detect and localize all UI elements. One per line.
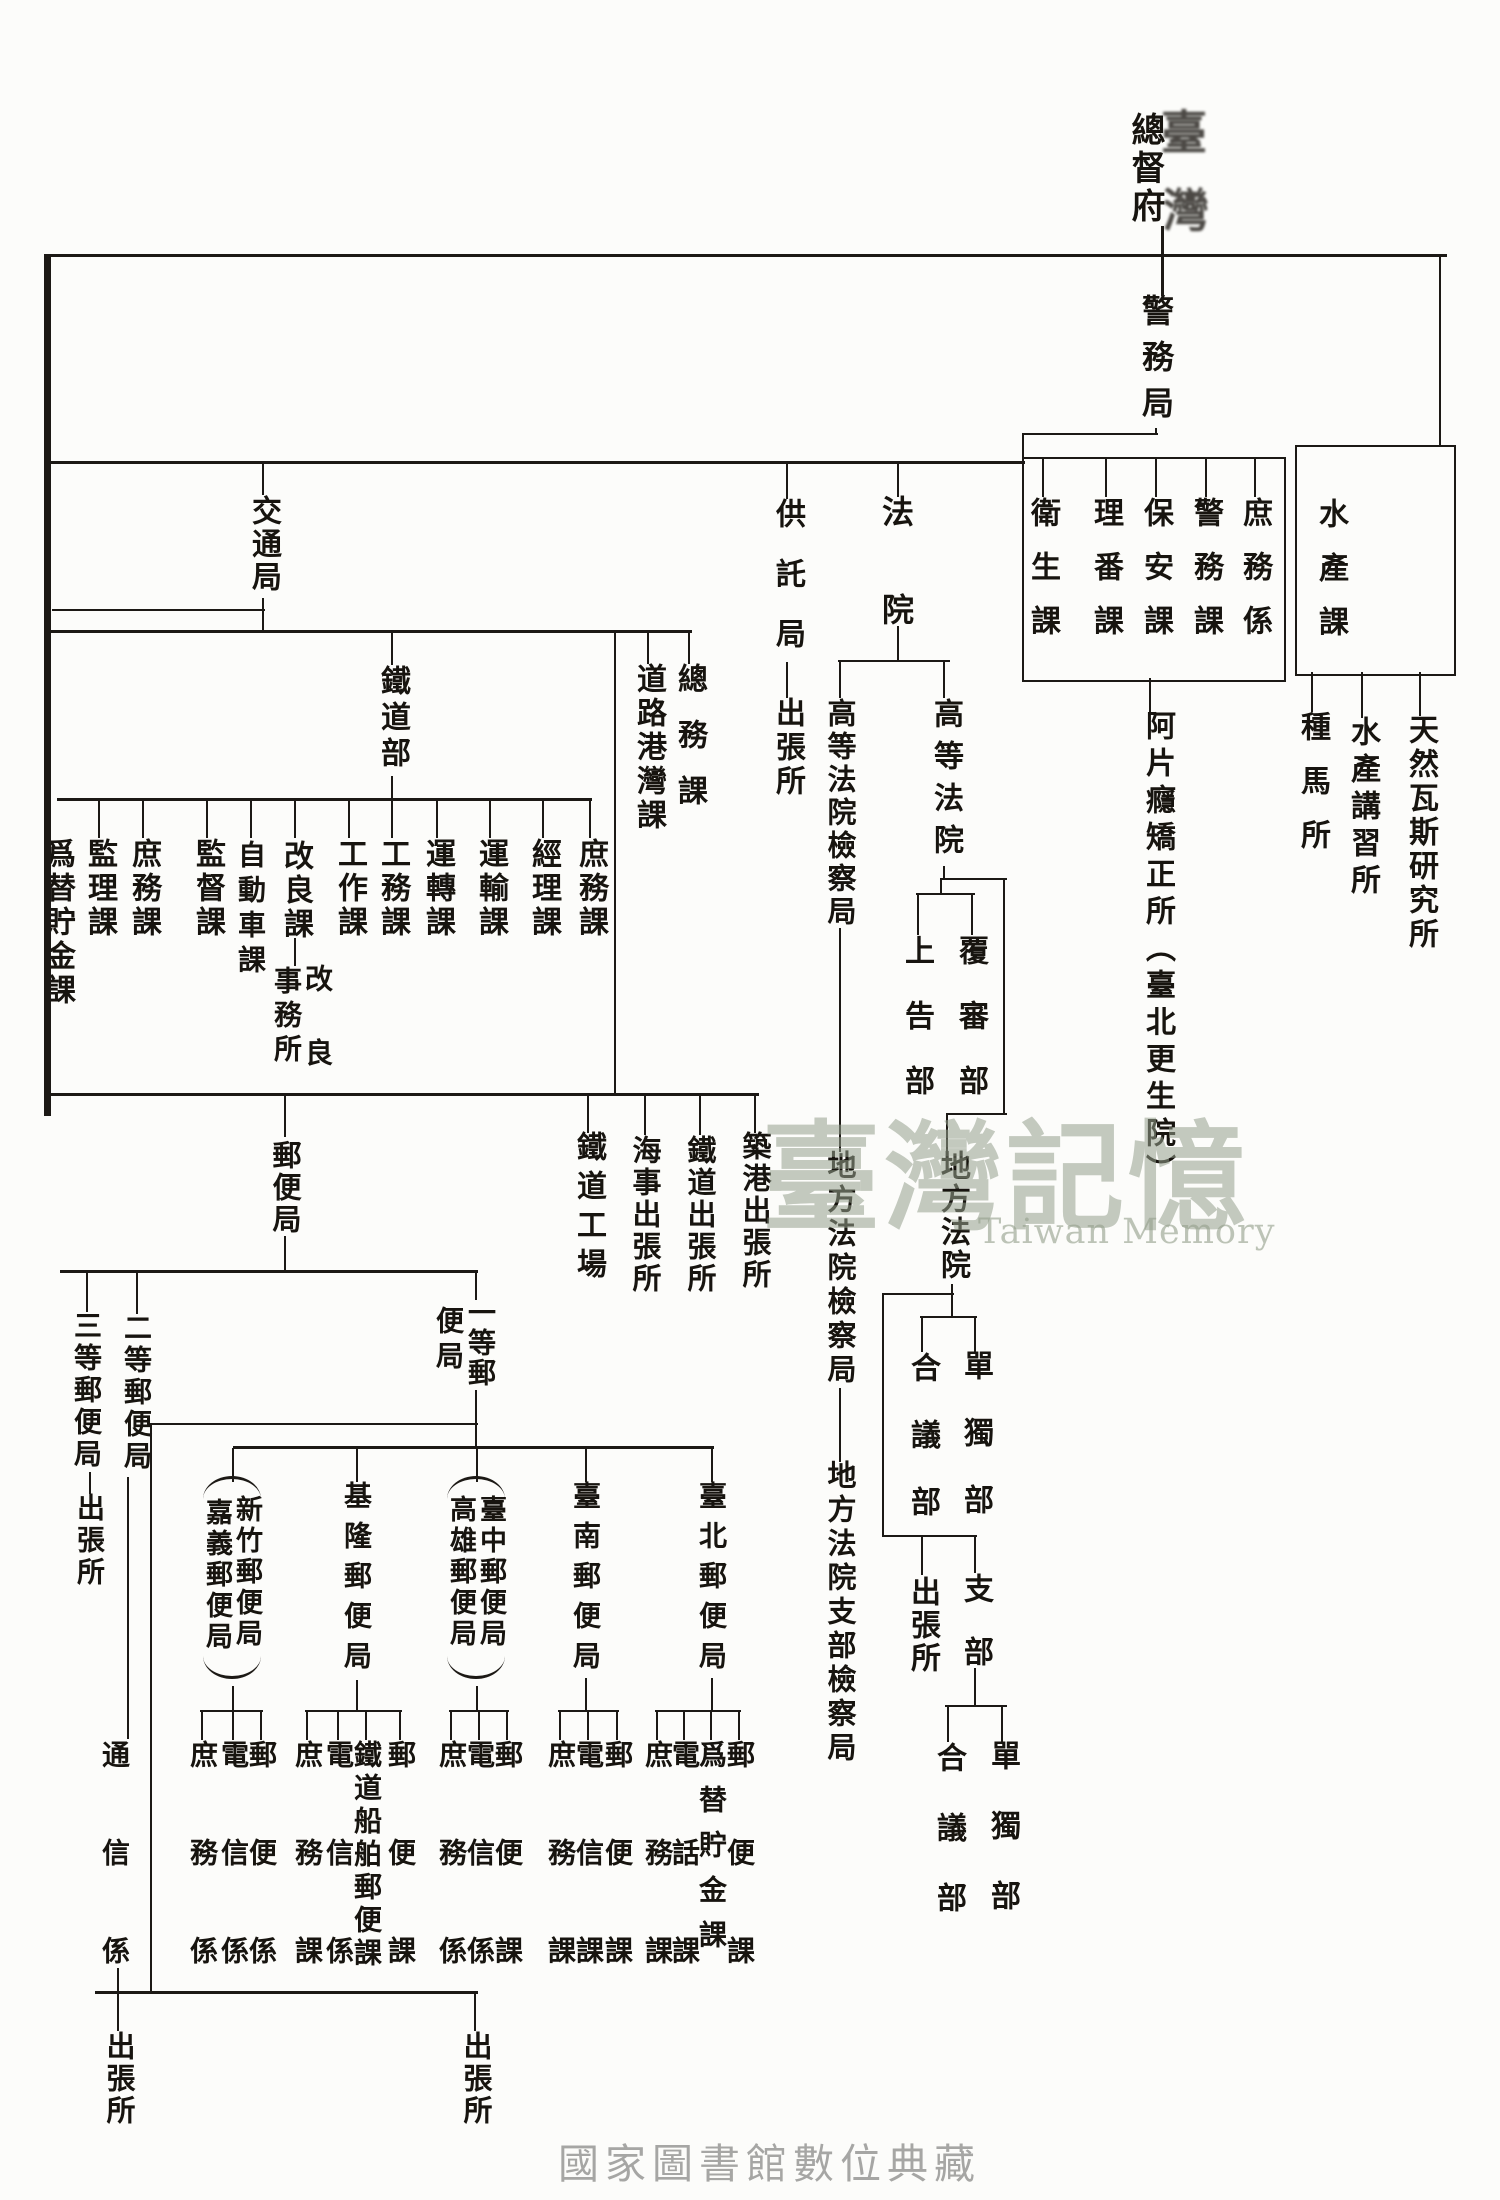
connector-line <box>656 1712 658 1740</box>
label-first-class-post-office-right: 一等郵 <box>466 1298 494 1388</box>
connector-line <box>294 938 296 966</box>
connector-line <box>391 800 393 838</box>
taiwan-memory-watermark-latin: Taiwan Memory <box>978 1212 1276 1252</box>
label-fisheries-training-institute: 水產講習所 <box>1347 716 1377 901</box>
label-railway-branch-office: 鐵道出張所 <box>685 1135 714 1295</box>
parenthesis-arc <box>203 1656 261 1679</box>
connector-line <box>52 609 265 611</box>
label-general-affairs-section: 總務課 <box>674 663 704 831</box>
connector-line <box>839 660 841 698</box>
label-railway-department: 鐵道部 <box>377 665 407 773</box>
connector-line <box>1149 678 1151 712</box>
connector-line <box>365 1712 367 1740</box>
connector-line <box>917 893 919 935</box>
connector-line <box>1003 878 1005 1115</box>
label-police-bureau: 警務局 <box>1140 294 1172 432</box>
connector-line <box>489 800 491 838</box>
connector-line <box>150 1423 478 1425</box>
connector-line <box>136 1270 138 1314</box>
connector-line <box>882 1293 954 1295</box>
connector-line <box>587 1095 589 1133</box>
label-high-court-prosecutors-office: 高等法院檢察局 <box>825 698 854 929</box>
label-takao-post-office: 高雄郵便局 <box>447 1495 474 1650</box>
connector-line <box>943 866 945 880</box>
connector-line <box>916 893 975 895</box>
label-single-judge-division: 單獨部 <box>960 1350 990 1551</box>
label-post-office: 郵便局 <box>270 1140 299 1236</box>
connector-line <box>356 1448 358 1482</box>
connector-line <box>710 1712 712 1740</box>
connector-line <box>232 1686 234 1712</box>
label-g5-mail-section: 郵便課 <box>725 1740 753 2034</box>
connector-line <box>356 1680 358 1712</box>
label-natural-gas-research-institute: 天然瓦斯研究所 <box>1405 714 1435 952</box>
label-transport-section: 運輸課 <box>475 838 505 940</box>
label-deposit-branch-office: 出張所 <box>772 697 802 799</box>
label-g2-general-affairs-section: 庶務課 <box>293 1740 321 2034</box>
label-improvement-office-left: 事務所 <box>272 966 300 1068</box>
label-third-class-post-office: 三等郵便局 <box>72 1311 100 1471</box>
connector-line <box>476 1686 478 1712</box>
connector-line <box>206 800 208 838</box>
parenthesis-arc <box>447 1656 505 1679</box>
connector-line <box>60 1270 478 1273</box>
connector-line <box>921 1535 923 1575</box>
connector-line <box>89 1472 91 1494</box>
connector-line <box>44 254 51 1116</box>
library-caption: 國家圖書館數位典藏 <box>558 2130 981 2190</box>
label-maritime-branch-office: 海事出張所 <box>630 1135 659 1295</box>
label-operation-section: 運轉課 <box>422 838 452 940</box>
connector-line <box>585 1448 587 1482</box>
label-horse-breeding-station: 種馬所 <box>1297 711 1327 873</box>
connector-line <box>117 1968 119 2031</box>
connector-line <box>45 254 1447 257</box>
connector-line <box>1161 256 1164 296</box>
label-taihoku-post-office: 臺北郵便局 <box>697 1481 725 1681</box>
connector-line <box>974 1668 976 1707</box>
label-kiirun-post-office: 基隆郵便局 <box>342 1481 370 1681</box>
connector-line <box>699 1095 701 1135</box>
label-road-harbor-section: 道路港灣課 <box>633 663 663 833</box>
connector-line <box>1022 433 1158 435</box>
label-general-affairs-section-rail-2: 庶務課 <box>575 838 605 940</box>
connector-line <box>838 660 950 662</box>
connector-line <box>1155 428 1157 435</box>
connector-line <box>391 776 393 800</box>
connector-line <box>478 1712 480 1740</box>
connector-line <box>589 800 591 838</box>
label-first-class-post-office-left: 便局 <box>434 1306 462 1376</box>
connector-line <box>127 1477 129 1739</box>
label-workshop-section: 工作課 <box>334 838 364 940</box>
label-branch-single-judge-division: 單獨部 <box>987 1740 1017 1950</box>
label-communications-unit: 通信係 <box>100 1740 128 2034</box>
connector-line <box>786 662 788 698</box>
parenthesis-arc <box>447 1476 505 1499</box>
connector-line <box>897 626 899 662</box>
connector-line <box>391 632 393 665</box>
connector-line <box>450 1712 452 1740</box>
connector-line <box>305 1710 402 1712</box>
label-g1-mail-unit: 郵便係 <box>247 1740 275 2034</box>
label-high-court: 高等法院 <box>930 698 960 866</box>
connector-line <box>883 1535 977 1537</box>
connector-line <box>506 1712 508 1740</box>
connector-line <box>974 1535 976 1573</box>
connector-line <box>260 1712 262 1740</box>
connector-line <box>655 1710 741 1712</box>
connector-line <box>940 878 942 895</box>
label-district-branch-prosecutors-office: 地方法院支部檢察局 <box>825 1460 854 1766</box>
connector-line <box>882 1293 884 1537</box>
connector-line <box>294 800 296 838</box>
connector-line <box>941 878 1007 880</box>
label-taiwan-overlay-1: 臺 <box>1158 108 1204 154</box>
connector-line <box>50 461 1025 464</box>
connector-line <box>951 1284 953 1318</box>
label-tainan-post-office: 臺南郵便局 <box>571 1481 599 1681</box>
connector-line <box>711 1448 713 1482</box>
connector-line <box>1161 226 1164 256</box>
label-taiwan-overlay-2: 灣 <box>1160 186 1206 232</box>
label-g2-rail-ship-mail-section: 鐵道船舶郵便課 <box>352 1740 380 1971</box>
connector-line <box>284 1095 286 1137</box>
connector-line <box>683 1712 685 1740</box>
connector-line <box>839 1388 841 1462</box>
connector-line <box>688 632 690 664</box>
connector-line <box>971 893 973 935</box>
connector-line <box>585 1678 587 1712</box>
label-kagi-post-office: 嘉義郵便局 <box>203 1498 230 1653</box>
label-g1-general-affairs-unit: 庶務係 <box>188 1740 216 2034</box>
connector-line <box>616 1712 618 1740</box>
connector-line <box>45 630 692 633</box>
connector-line <box>921 1316 923 1352</box>
connector-line <box>945 1705 1007 1707</box>
connector-line <box>262 598 264 632</box>
connector-line <box>1022 435 1024 459</box>
label-g3-telegraph-unit: 電信係 <box>465 1740 493 2034</box>
label-taichu-post-office: 臺中郵便局 <box>477 1495 504 1650</box>
label-branch-collegiate-division: 合議部 <box>933 1742 963 1952</box>
connector-line <box>920 1316 977 1318</box>
connector-line <box>201 1712 203 1740</box>
parenthesis-arc <box>203 1476 261 1499</box>
label-automobile-section: 自動車課 <box>236 840 264 980</box>
label-g2-telegraph-unit: 電信係 <box>324 1740 352 2034</box>
label-branch-office-bottom-middle: 出張所 <box>461 2031 490 2127</box>
label-shinchiku-post-office: 新竹郵便局 <box>233 1495 260 1650</box>
label-railway-factory: 鐵道工場 <box>573 1131 603 1287</box>
label-g2-mail-section: 郵便課 <box>386 1740 414 2034</box>
label-g4-mail-section: 郵便課 <box>603 1740 631 2034</box>
connector-line <box>1439 256 1441 446</box>
label-branch-office-bottom-left: 出張所 <box>104 2031 133 2127</box>
connector-line <box>1419 672 1421 716</box>
connector-line <box>150 1423 152 1993</box>
label-second-class-post-office: 二等郵便局 <box>122 1313 150 1473</box>
connector-line <box>232 1712 234 1740</box>
connector-line <box>644 1095 646 1135</box>
label-g4-telegraph-section: 電信課 <box>574 1740 602 2034</box>
label-accounting-section: 經理課 <box>528 838 558 940</box>
connector-line <box>943 660 945 698</box>
label-collegiate-division: 合議部 <box>907 1352 937 1553</box>
label-g1-telegraph-unit: 電信係 <box>219 1740 247 2034</box>
connector-line <box>1361 672 1363 718</box>
label-district-court-branch-office: 出張所 <box>907 1576 937 1675</box>
label-g5-general-affairs-section: 庶務課 <box>643 1740 671 2034</box>
connector-line <box>947 1705 949 1742</box>
connector-line <box>142 800 144 838</box>
connector-line <box>647 632 649 664</box>
connector-line <box>45 1093 759 1096</box>
connector-line <box>98 800 100 838</box>
connector-line <box>559 1712 561 1740</box>
connector-line <box>57 798 592 801</box>
label-transportation-bureau: 交通局 <box>248 495 278 594</box>
connector-line <box>475 1270 477 1300</box>
connector-line <box>1001 1705 1003 1742</box>
police-sections-box <box>1022 457 1286 682</box>
connector-line <box>614 632 616 1095</box>
label-improvement-office-right: 改良 <box>303 964 331 1112</box>
connector-line <box>786 463 788 499</box>
connector-line <box>738 1712 740 1740</box>
connector-line <box>474 1991 476 2031</box>
label-general-affairs-section-rail-1: 庶務課 <box>128 838 158 940</box>
connector-line <box>974 1316 976 1352</box>
label-improvement-section: 改良課 <box>280 840 310 942</box>
connector-line <box>348 800 350 838</box>
label-engineering-section: 工務課 <box>377 838 407 940</box>
label-deposit-bureau: 供託局 <box>772 498 802 678</box>
scanned-org-chart-page: 總督府臺灣警務局衛生課理番課保安課警務課庶務係阿片癮矯正所︵臺北更生院︶水產課種… <box>0 0 1500 2200</box>
connector-line <box>337 1712 339 1740</box>
connector-line <box>754 1095 756 1133</box>
label-g3-general-affairs-unit: 庶務係 <box>437 1740 465 2034</box>
connector-line <box>1311 672 1313 712</box>
label-inspection-section: 監督課 <box>192 838 222 940</box>
connector-line <box>284 1236 286 1272</box>
connector-line <box>306 1712 308 1740</box>
connector-line <box>233 1446 714 1449</box>
connector-line <box>86 1270 88 1312</box>
label-third-class-branch-office: 出張所 <box>75 1493 103 1589</box>
connector-line <box>711 1678 713 1712</box>
connector-line <box>399 1712 401 1740</box>
fisheries-section-box <box>1295 445 1456 676</box>
label-supervision-section: 監理課 <box>84 838 114 940</box>
label-g5-money-order-savings-section: 爲替貯金課 <box>697 1740 725 1965</box>
connector-line <box>542 800 544 838</box>
connector-line <box>897 463 899 497</box>
label-g4-general-affairs-section: 庶務課 <box>546 1740 574 2034</box>
connector-line <box>250 800 252 838</box>
connector-line <box>587 1712 589 1740</box>
connector-line <box>262 463 264 495</box>
label-g3-mail-section: 郵便課 <box>493 1740 521 2034</box>
label-g5-telephone-section: 電話課 <box>670 1740 698 2034</box>
connector-line <box>436 800 438 838</box>
connector-line <box>95 1991 478 1994</box>
connector-line <box>475 1390 477 1448</box>
